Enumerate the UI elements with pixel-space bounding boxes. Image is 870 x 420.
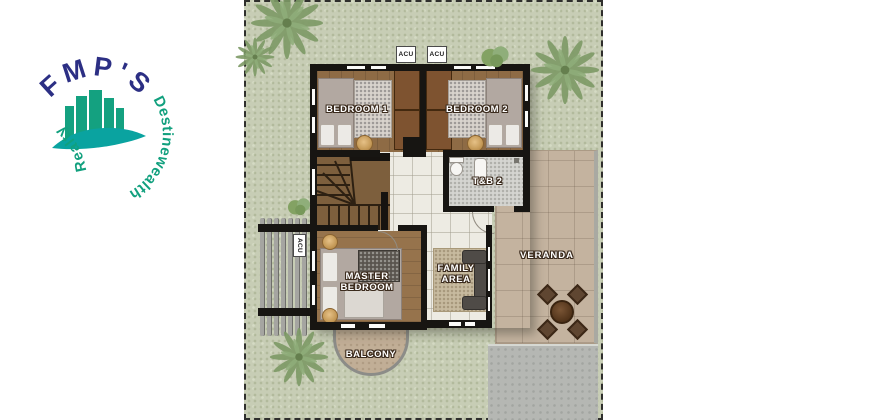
window bbox=[524, 84, 529, 102]
company-logo: FMP'S Destinewealth Realty bbox=[6, 46, 188, 222]
acu-label-side: ACU bbox=[293, 234, 306, 257]
wall-segment bbox=[421, 225, 427, 328]
room-label-family: FAMILY AREA bbox=[431, 264, 481, 286]
sliding-door bbox=[368, 323, 386, 329]
room-label-veranda: VERANDA bbox=[512, 251, 582, 262]
wall-segment bbox=[446, 206, 494, 212]
pillow bbox=[320, 124, 335, 146]
bush bbox=[286, 193, 312, 219]
wall-segment bbox=[443, 150, 449, 212]
trellis-beam bbox=[258, 308, 312, 316]
wall-segment bbox=[310, 225, 378, 231]
room-label-bedroom1: BEDROOM 1 bbox=[312, 105, 402, 116]
palm-tree bbox=[235, 37, 275, 77]
window bbox=[311, 88, 316, 106]
acu-side-text: ACU bbox=[296, 238, 303, 253]
pillow bbox=[337, 124, 352, 146]
trellis-beam bbox=[258, 224, 312, 232]
room-label-master: MASTER BEDROOM bbox=[333, 272, 401, 294]
logo-text-right: Destinewealth bbox=[126, 93, 176, 203]
window bbox=[453, 65, 472, 70]
bedside-stool bbox=[322, 234, 338, 250]
pillow bbox=[488, 124, 503, 146]
floor-drain bbox=[514, 158, 519, 163]
wall-segment bbox=[310, 150, 380, 157]
wall-segment bbox=[514, 206, 530, 212]
palm-tree bbox=[269, 327, 329, 387]
svg-text:Destinewealth: Destinewealth bbox=[126, 93, 176, 203]
window bbox=[346, 65, 366, 70]
window bbox=[464, 321, 476, 327]
driveway bbox=[488, 344, 598, 420]
wall-segment bbox=[443, 150, 530, 157]
toilet bbox=[450, 162, 463, 176]
sofa bbox=[462, 250, 487, 264]
trellis-slat bbox=[274, 218, 279, 336]
palm-tree bbox=[530, 35, 600, 105]
pillow bbox=[505, 124, 520, 146]
room-label-balcony: BALCONY bbox=[335, 350, 407, 361]
window bbox=[524, 110, 529, 128]
acu-label-2: ACU bbox=[427, 46, 447, 63]
window bbox=[311, 168, 316, 196]
window bbox=[448, 321, 462, 327]
trellis-slat bbox=[260, 218, 265, 336]
acu-label-1: ACU bbox=[396, 46, 416, 63]
sliding-door bbox=[487, 268, 491, 292]
window bbox=[311, 116, 316, 134]
room-label-bedroom2: BEDROOM 2 bbox=[432, 105, 522, 116]
trellis-slat bbox=[267, 218, 272, 336]
sofa bbox=[462, 296, 487, 310]
floorplan-image: ACU bbox=[0, 0, 870, 420]
wall-pier bbox=[403, 137, 424, 157]
window bbox=[487, 296, 491, 312]
veranda-table bbox=[550, 300, 574, 324]
acu-1-text: ACU bbox=[399, 51, 414, 58]
trellis-slat bbox=[281, 218, 286, 336]
window bbox=[370, 65, 387, 70]
sliding-door bbox=[340, 323, 356, 329]
window bbox=[311, 284, 316, 306]
window bbox=[487, 246, 491, 262]
bush bbox=[479, 40, 511, 72]
staircase bbox=[317, 153, 390, 230]
room-label-tnb2: T&B 2 bbox=[460, 177, 515, 188]
acu-2-text: ACU bbox=[430, 51, 445, 58]
window bbox=[311, 250, 316, 272]
